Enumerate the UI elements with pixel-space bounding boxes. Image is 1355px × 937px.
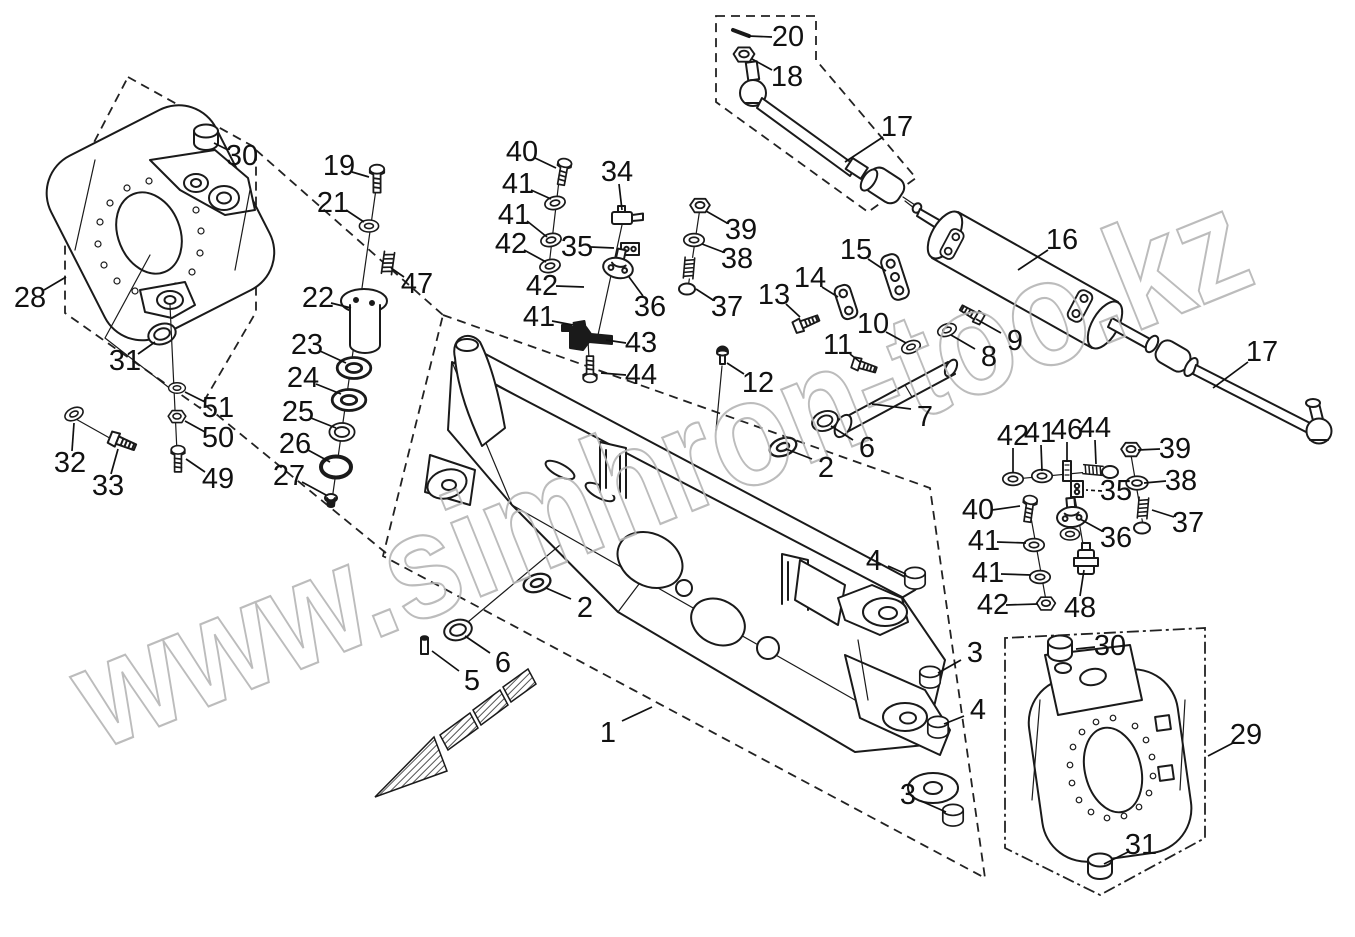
leader-line-38 [702,244,723,252]
callout-40: 40 [962,494,994,526]
callout-2: 2 [818,452,834,484]
leader-line-42 [524,250,546,262]
callout-19: 19 [323,150,355,182]
callout-16: 16 [1046,224,1078,256]
callout-30: 30 [1094,630,1126,662]
bushing-3-upper [920,666,940,688]
callout-47: 47 [401,268,433,300]
callout-38: 38 [721,243,753,275]
plate-35 [1071,481,1083,497]
callout-39: 39 [725,214,757,246]
callout-2: 2 [577,592,593,624]
bolt-19 [370,165,384,193]
diagram-page: www.simhron-too.kz 122334456678910111213… [0,0,1355,937]
spring-37 [1137,497,1148,519]
leader-line-23 [320,351,346,363]
leader-line-40 [992,506,1020,510]
nut-42 [1037,597,1056,610]
callout-4: 4 [866,545,882,577]
washer-38 [684,234,704,247]
tie-rod-shaft [757,98,856,176]
callout-42: 42 [526,270,558,302]
direction-arrow [375,669,536,797]
bushing-31-right [1088,854,1112,880]
leader-line-20 [748,36,772,37]
callout-31: 31 [109,345,141,377]
callout-9: 9 [1007,325,1023,357]
callout-42: 42 [997,420,1029,452]
callout-41: 41 [968,525,1000,557]
callout-35: 35 [1100,475,1132,507]
callout-51: 51 [202,392,234,424]
callout-11: 11 [823,329,853,361]
callout-12: 12 [742,367,774,399]
leader-line-1 [622,707,652,721]
sensor-34 [612,206,643,224]
bushing-4-upper [905,567,925,589]
spring-37 [683,257,694,279]
callout-44: 44 [1079,412,1111,444]
callout-41: 41 [523,301,555,333]
washer-41 [1032,470,1052,483]
washer-36-sub [1060,528,1079,540]
callout-43: 43 [625,327,657,359]
leader-line-35 [591,247,614,248]
callout-13: 13 [758,279,790,311]
exploded-parts-diagram: www.simhron-too.kz 122334456678910111213… [0,0,1355,937]
leader-line-24 [316,384,341,394]
leader-line-42 [556,286,584,287]
callout-36: 36 [634,291,666,323]
washer-32 [63,405,85,424]
leader-line-44 [601,373,626,375]
leader-line-26 [308,450,330,462]
callout-17: 17 [881,111,913,143]
leader-line-36 [1080,519,1102,531]
lever-43 [570,327,612,350]
callout-38: 38 [1165,465,1197,497]
tie-rod-shaft-right [1193,365,1310,432]
arrow-head [375,737,447,797]
callout-32: 32 [54,447,86,479]
bolt-head-37 [1134,523,1150,534]
callout-42: 42 [977,589,1009,621]
king-pin-22 [341,289,387,353]
bushing-3-lower [943,804,963,826]
leader-line-39 [706,211,727,223]
callout-23: 23 [291,329,323,361]
callout-27: 27 [273,460,305,492]
cap-30-right [1048,636,1072,662]
leader-line-28 [44,277,66,290]
callout-44: 44 [625,359,657,391]
callout-36: 36 [1100,522,1132,554]
callout-21: 21 [317,187,349,219]
leader-line-5 [432,651,459,671]
callout-15: 15 [840,234,872,266]
callout-37: 37 [711,291,743,323]
callout-18: 18 [771,61,803,93]
bolt-40 [1021,495,1038,523]
callout-22: 22 [302,282,334,314]
leader-line-41 [1001,574,1031,575]
callout-33: 33 [92,470,124,502]
leader-line-6 [465,636,490,653]
bolt-head-37 [679,284,695,295]
nut-39 [690,199,710,213]
callout-41: 41 [972,557,1004,589]
callout-30: 30 [226,140,258,172]
leader-line-17 [845,137,883,162]
callout-26: 26 [279,428,311,460]
callout-6: 6 [495,647,511,679]
leader-line-25 [311,418,336,428]
callout-42: 42 [495,228,527,260]
callout-20: 20 [772,21,804,53]
bolt-44 [583,356,597,382]
callout-50: 50 [202,422,234,454]
sensor-48 [1074,543,1098,574]
washer-51 [169,383,186,394]
callout-37: 37 [1172,507,1204,539]
right-knuckle-group [1023,636,1197,880]
washer-41 [1030,571,1050,584]
bolt-40 [554,158,572,186]
spring-pin-47 [381,251,394,274]
leader-line-41 [997,542,1026,543]
callout-3: 3 [900,779,916,811]
callout-48: 48 [1064,592,1096,624]
cotter-pin-20 [733,30,749,36]
nut-50 [168,411,186,423]
castle-nut-18 [734,47,755,61]
bolt-49 [171,446,185,472]
callout-49: 49 [202,463,234,495]
leader-line-42 [1006,604,1038,605]
lever-36 [1055,497,1087,529]
callout-1: 1 [600,717,616,749]
callout-41: 41 [502,168,534,200]
pin-46 [1063,461,1071,481]
callout-10: 10 [857,308,889,340]
washer-42 [1003,473,1023,486]
leader-line-39 [1138,449,1160,450]
callout-24: 24 [287,362,319,394]
nut-39 [1121,443,1141,457]
callout-3: 3 [967,637,983,669]
left-knuckle-bearing-boss [209,186,239,210]
callout-29: 29 [1230,719,1262,751]
callout-31: 31 [1125,829,1157,861]
inner-ball-joint [857,164,923,215]
callout-6: 6 [859,432,875,464]
callout-17: 17 [1246,336,1278,368]
left-knuckle-group [32,91,289,355]
bushing-4-lower [928,716,948,738]
callout-34: 34 [601,156,633,188]
callout-40: 40 [506,136,538,168]
callout-25: 25 [282,396,314,428]
leader-line-37 [1152,510,1174,517]
washer-41 [1024,539,1044,552]
plug-33 [107,431,137,454]
spring-44 [1083,465,1103,476]
callout-39: 39 [1159,433,1191,465]
leader-line-40 [535,158,556,168]
callout-5: 5 [464,665,480,697]
callout-7: 7 [917,401,933,433]
callout-14: 14 [794,262,826,294]
callout-41: 41 [498,199,530,231]
callout-8: 8 [981,341,997,373]
callout-4: 4 [970,694,986,726]
callout-35: 35 [561,231,593,263]
cap-30-left [194,125,218,151]
callout-28: 28 [14,282,46,314]
callout-46: 46 [1051,414,1083,446]
seal-25 [329,423,354,441]
